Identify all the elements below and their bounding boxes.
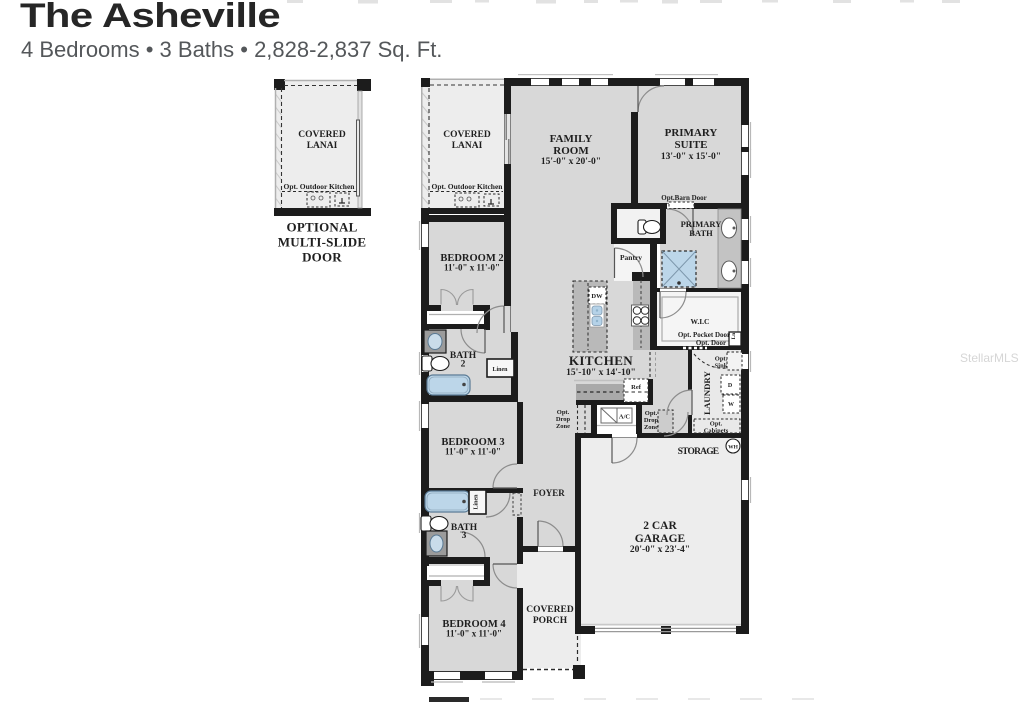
svg-text:11'-0" x 11'-0": 11'-0" x 11'-0" xyxy=(445,447,501,457)
svg-text:WH: WH xyxy=(728,445,739,451)
svg-text:FAMILY: FAMILY xyxy=(550,133,593,145)
svg-text:Zone: Zone xyxy=(644,424,658,431)
svg-text:Pantry: Pantry xyxy=(620,253,642,262)
svg-text:15'-10" x 14'-10": 15'-10" x 14'-10" xyxy=(566,368,636,378)
svg-text:Linen: Linen xyxy=(492,367,508,373)
svg-text:COVERED: COVERED xyxy=(526,605,574,615)
svg-text:LANAI: LANAI xyxy=(307,141,338,151)
svg-text:LANAI: LANAI xyxy=(452,141,483,151)
svg-text:20'-0" x 23'-4": 20'-0" x 23'-4" xyxy=(630,545,690,555)
svg-text:Ref: Ref xyxy=(631,384,642,391)
svg-text:Opt. Door: Opt. Door xyxy=(696,339,726,347)
svg-text:Sink: Sink xyxy=(715,363,728,370)
svg-text:2 CAR: 2 CAR xyxy=(643,520,677,532)
svg-text:Ln: Ln xyxy=(731,333,737,340)
svg-text:Linen: Linen xyxy=(474,494,480,510)
svg-text:DW: DW xyxy=(591,293,603,300)
svg-text:Drop: Drop xyxy=(644,417,659,424)
svg-text:W: W xyxy=(728,402,734,408)
svg-text:PORCH: PORCH xyxy=(533,616,568,626)
svg-text:Opt. Outdoor Kitchen: Opt. Outdoor Kitchen xyxy=(432,182,504,191)
svg-text:PRIMARY: PRIMARY xyxy=(665,127,718,139)
svg-text:W.I.C: W.I.C xyxy=(691,317,710,326)
svg-text:COVERED: COVERED xyxy=(298,130,346,140)
svg-text:BATH: BATH xyxy=(689,228,713,238)
svg-text:A/C: A/C xyxy=(619,414,631,421)
svg-text:2: 2 xyxy=(461,360,466,370)
svg-text:OPTIONAL: OPTIONAL xyxy=(287,220,358,235)
svg-text:KITCHEN: KITCHEN xyxy=(569,353,633,368)
svg-text:13'-0" x 15'-0": 13'-0" x 15'-0" xyxy=(661,152,721,162)
svg-text:11'-0" x 11'-0": 11'-0" x 11'-0" xyxy=(446,629,502,639)
svg-text:Opt.: Opt. xyxy=(645,410,658,417)
svg-text:MULTI-SLIDE: MULTI-SLIDE xyxy=(278,235,366,250)
svg-text:Opt.: Opt. xyxy=(715,356,728,363)
svg-text:SUITE: SUITE xyxy=(674,139,707,151)
svg-text:Cabinets: Cabinets xyxy=(704,428,729,435)
svg-text:STORAGE: STORAGE xyxy=(678,447,719,457)
svg-text:11'-0" x 11'-0": 11'-0" x 11'-0" xyxy=(444,263,500,273)
svg-text:Opt.: Opt. xyxy=(557,409,570,416)
svg-text:COVERED: COVERED xyxy=(443,130,491,140)
svg-text:Drop: Drop xyxy=(556,416,571,423)
svg-text:Opt.Barn Door: Opt.Barn Door xyxy=(661,194,707,202)
svg-text:3: 3 xyxy=(462,531,467,541)
svg-text:Opt. Pocket Door: Opt. Pocket Door xyxy=(678,331,730,339)
svg-text:D: D xyxy=(728,383,733,389)
svg-text:Opt. Outdoor Kitchen: Opt. Outdoor Kitchen xyxy=(284,182,356,191)
svg-text:LAUNDRY: LAUNDRY xyxy=(702,371,712,415)
svg-text:DOOR: DOOR xyxy=(302,250,342,265)
svg-text:Opt.: Opt. xyxy=(710,421,723,428)
svg-text:15'-0" x 20'-0": 15'-0" x 20'-0" xyxy=(541,157,601,167)
svg-text:FOYER: FOYER xyxy=(533,488,565,498)
svg-text:GARAGE: GARAGE xyxy=(635,533,686,545)
svg-text:ROOM: ROOM xyxy=(553,145,589,157)
svg-text:Zone: Zone xyxy=(556,423,570,430)
